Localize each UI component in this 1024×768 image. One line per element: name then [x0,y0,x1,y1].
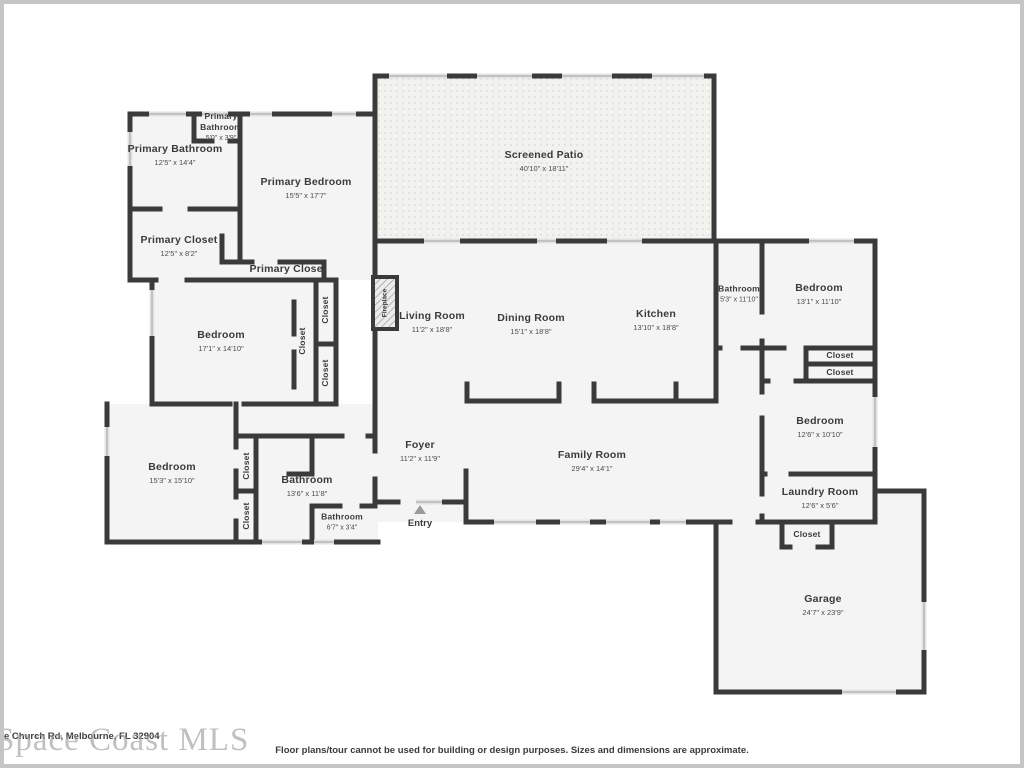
patio-screen-texture [375,76,714,241]
floor-plan-drawing [4,4,1024,768]
closet-label-sw-2: Closet [241,502,251,529]
floor-fills [107,76,924,692]
closet-label-w-tall: Closet [297,327,307,354]
closet-label-ne-1: Closet [826,350,853,360]
fireplace-label: Fireplace [382,289,389,318]
closet-label-w-1: Closet [320,296,330,323]
disclaimer-text: Floor plans/tour cannot be used for buil… [4,745,1020,756]
closet-label-ne-2: Closet [826,367,853,377]
entry-arrow-icon [414,505,426,514]
floor-plan-page: Primary Bathroom 5'0" x 3'9" Primary Bat… [0,0,1024,768]
closet-label-sw-1: Closet [241,452,251,479]
closet-label-laundry: Closet [793,529,820,539]
entry-label: Entry [408,518,432,529]
closet-label-w-2: Closet [320,359,330,386]
